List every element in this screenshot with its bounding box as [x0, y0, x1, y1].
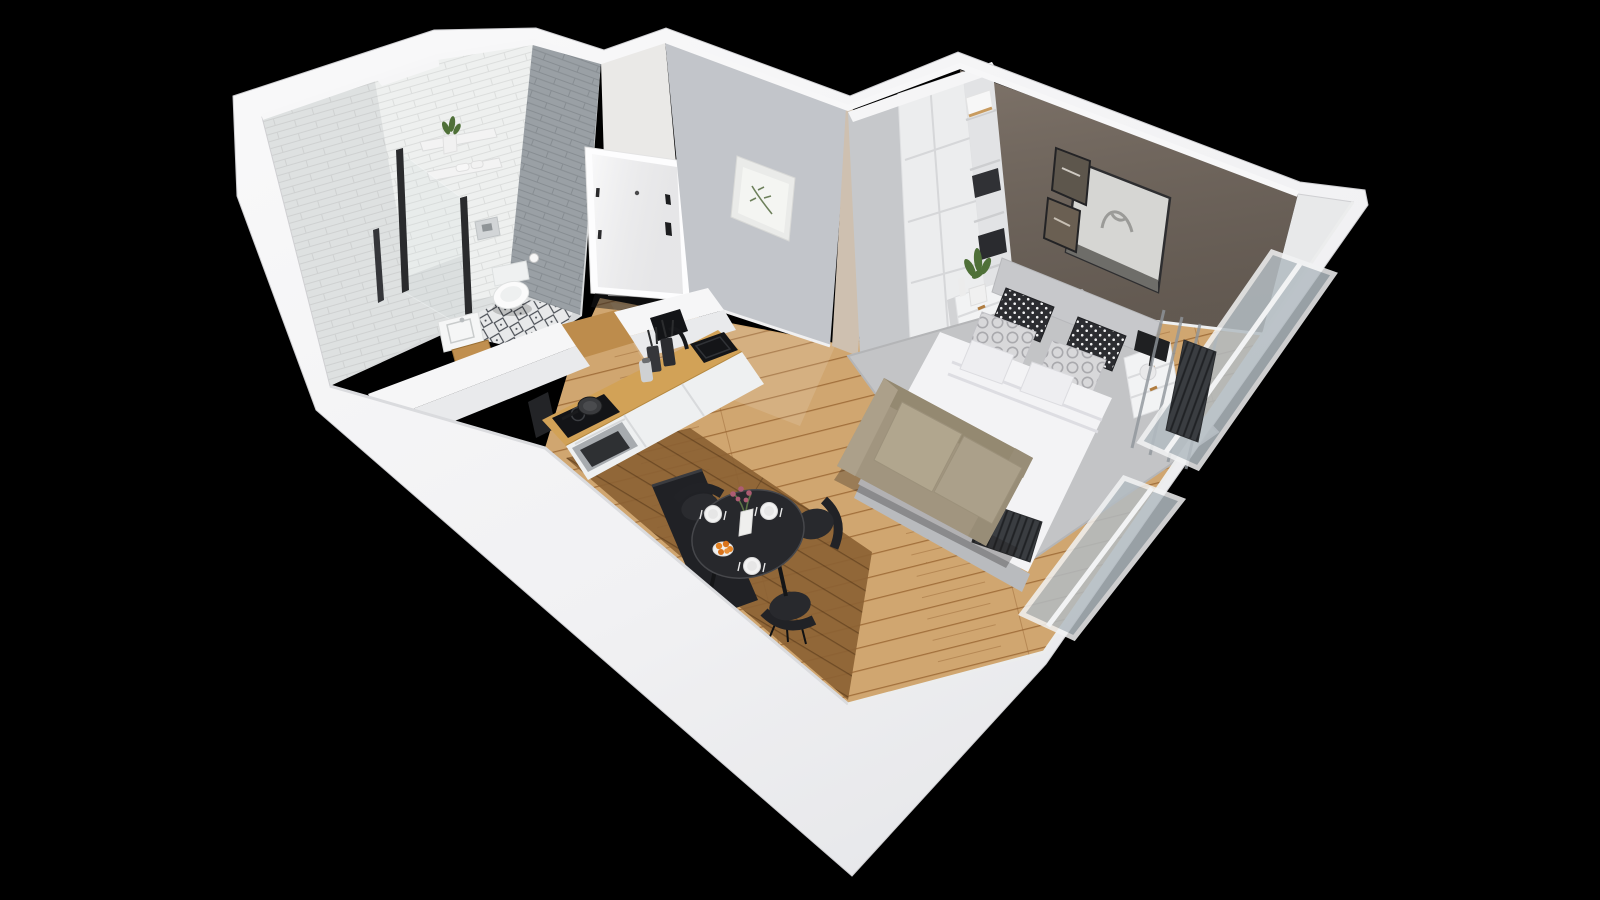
- plate-center: [764, 506, 774, 516]
- plate-center: [708, 509, 718, 519]
- door-hinge-icon: [596, 188, 600, 197]
- plate-center: [747, 561, 757, 571]
- plant-pot: [443, 134, 457, 154]
- door-peephole-icon: [635, 191, 639, 195]
- door-handle-icon: [665, 222, 672, 236]
- apartment-3d-floorplan: 3D cutaway floor-plan render of a studio…: [0, 0, 1600, 900]
- towel-roll: [471, 160, 484, 169]
- door-hinge-icon: [598, 230, 602, 239]
- vase-body: [739, 509, 753, 536]
- apartment-render-stage: 3D cutaway floor-plan render of a studio…: [0, 0, 1600, 900]
- pan-inner: [583, 401, 597, 411]
- toiletry-bottle: [460, 318, 465, 323]
